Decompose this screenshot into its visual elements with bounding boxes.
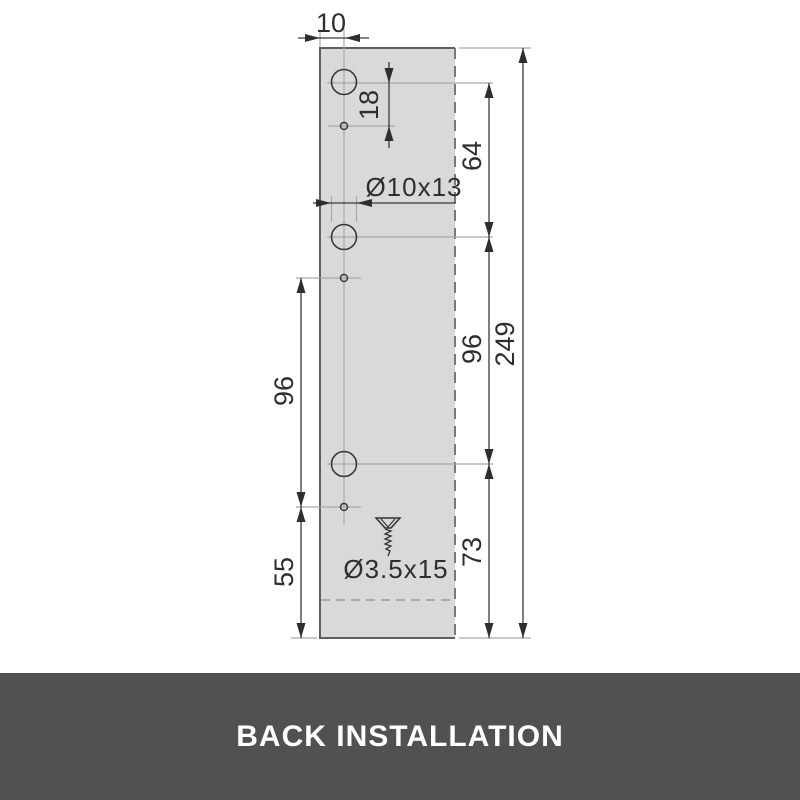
arrow-73-top xyxy=(485,464,494,479)
banner-title: BACK INSTALLATION xyxy=(236,720,564,754)
arrow-96l-bottom xyxy=(297,492,306,507)
arrow-96r-top xyxy=(485,237,494,252)
dim-text-55: 55 xyxy=(269,557,299,587)
arrow-10-right xyxy=(345,34,360,42)
dim-text-96-right: 96 xyxy=(457,334,487,364)
installation-drawing: 10 18 64 96 73 249 96 55 Ø10x13 Ø3.5x15 xyxy=(0,0,800,673)
dim-text-64: 64 xyxy=(457,141,487,171)
arrow-249-bottom xyxy=(519,623,528,638)
arrow-73-bottom xyxy=(485,623,494,638)
callout-screw: Ø3.5x15 xyxy=(343,554,448,584)
arrow-96l-top xyxy=(297,278,306,293)
page: 10 18 64 96 73 249 96 55 Ø10x13 Ø3.5x15 … xyxy=(0,0,800,800)
dim-text-10: 10 xyxy=(316,8,346,38)
arrow-64-top xyxy=(485,83,494,98)
arrow-64-bottom xyxy=(485,222,494,237)
dim-text-73: 73 xyxy=(457,537,487,567)
dim-text-18: 18 xyxy=(354,90,384,120)
arrow-96r-bottom xyxy=(485,449,494,464)
callout-large-hole: Ø10x13 xyxy=(365,172,462,202)
arrow-55-top xyxy=(297,507,306,522)
banner: BACK INSTALLATION xyxy=(0,673,800,800)
arrow-55-bottom xyxy=(297,623,306,638)
arrow-249-top xyxy=(519,48,528,63)
dim-text-249: 249 xyxy=(490,321,520,366)
dim-text-96-left: 96 xyxy=(269,376,299,406)
